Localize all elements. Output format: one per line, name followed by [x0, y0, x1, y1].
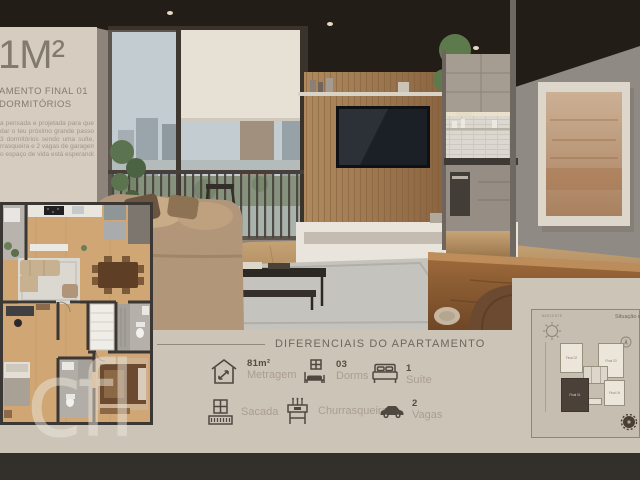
plan-suite [96, 358, 148, 414]
feature-label: Sacada [241, 406, 278, 419]
unit-final-04: Final 04 [604, 380, 625, 406]
street-line [545, 342, 546, 412]
divider-line [157, 344, 265, 345]
paragraph-line: 3 dormitórios sendo uma suíte, [0, 136, 94, 144]
ceiling-light [327, 22, 333, 26]
feature-value: 81m² [247, 358, 297, 369]
plan-bathroom-1 [118, 304, 151, 351]
feature-metragem: 81m² Metragem [208, 358, 297, 386]
site-plan: Situação e posição NASCENTE Final 02 Fin… [531, 309, 640, 438]
subtitle-line-2: DORMITÓRIOS [0, 98, 97, 111]
site-plan-caption: Situação e posição [615, 314, 640, 320]
unit-label: Final 02 [566, 356, 577, 360]
feature-label: Churrasqueira [318, 405, 388, 418]
paragraph-line: dar o teu próximo grande passo [0, 128, 94, 136]
wall-corner [510, 0, 516, 290]
kitchen [442, 50, 518, 264]
balcony-icon [207, 399, 234, 426]
feature-value: 2 [412, 398, 442, 409]
feature-label: Vagas [412, 409, 442, 422]
building-entry [588, 398, 602, 405]
title-panel: 1M² AMENTO FINAL 01 DORMITÓRIOS a pensad… [0, 27, 97, 202]
bunk-bed-icon [303, 359, 329, 386]
paragraph-line: rrasqueira e 2 vagas de garagem [0, 143, 94, 151]
ceiling-light [167, 11, 173, 15]
feature-label: Metragem [247, 369, 297, 382]
feature-churrasqueira: Churrasqueira [284, 397, 388, 426]
features-heading: DIFERENCIAIS DO APARTAMENTO [275, 338, 485, 350]
plan-bathroom-2 [60, 360, 92, 418]
feature-vagas: 2 Vagas [379, 398, 442, 422]
sun-icon [540, 318, 564, 342]
floor-plan [0, 202, 153, 425]
feature-sacada: Sacada [207, 399, 278, 426]
roller-blind [180, 28, 304, 120]
feature-label: Dorms [336, 370, 368, 383]
feature-value: 1 [406, 363, 432, 374]
unit-label: Final 01 [569, 393, 580, 397]
paragraph-line: o espaço de vida está esperando [0, 151, 94, 159]
unit-final-01-highlighted: Final 01 [561, 378, 589, 412]
feature-dorms: 03 Dorms [303, 359, 368, 386]
footer-strip [0, 453, 640, 480]
apartment-flyer: DIFERENCIAIS DO APARTAMENTO 81m² Metrage… [0, 0, 640, 480]
unit-label: Final 04 [609, 391, 620, 395]
feature-value: 03 [336, 359, 368, 370]
feature-suite: 1 Suíte [371, 363, 432, 387]
subtitle-line-1: AMENTO FINAL 01 [0, 85, 97, 98]
headline: 1M² [0, 33, 97, 77]
framed-artwork [538, 82, 634, 232]
feature-label: Suíte [406, 374, 432, 387]
ceiling-light [473, 46, 479, 50]
car-icon [379, 404, 405, 419]
unit-label: Final 03 [605, 359, 616, 363]
area-measure-icon [208, 358, 240, 386]
description-paragraph: a pensada e projetada para que dar o teu… [0, 120, 94, 159]
grill-icon [284, 397, 311, 426]
tree-icon [620, 413, 638, 431]
paragraph-line: a pensada e projetada para que [0, 120, 94, 128]
unit-final-02: Final 02 [560, 343, 583, 373]
subtitle: AMENTO FINAL 01 DORMITÓRIOS [0, 85, 97, 111]
plan-wardrobe [90, 304, 114, 350]
kitchen-counter [444, 158, 518, 165]
double-bed-icon [371, 363, 399, 384]
